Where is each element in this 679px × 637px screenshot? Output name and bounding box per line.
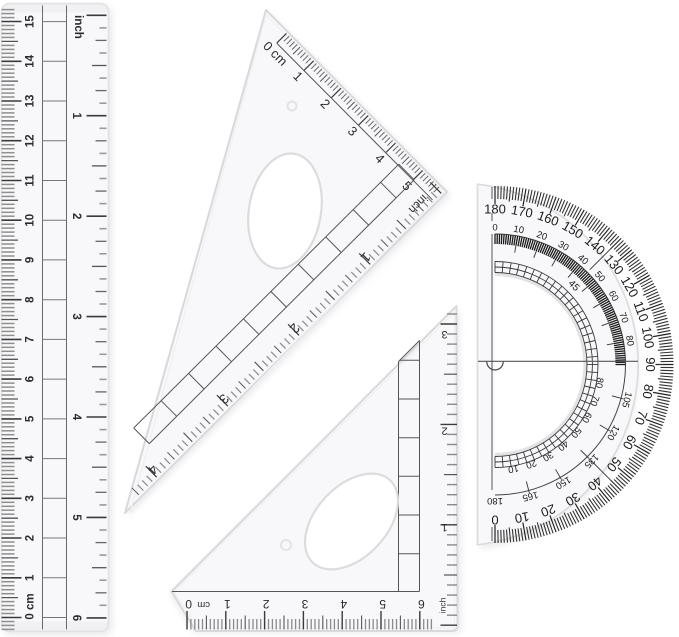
svg-text:11: 11 — [25, 174, 37, 187]
svg-text:0: 0 — [492, 223, 497, 234]
svg-text:6: 6 — [70, 615, 82, 621]
svg-text:180: 180 — [487, 495, 503, 506]
svg-text:5: 5 — [379, 597, 386, 611]
svg-text:3: 3 — [25, 495, 37, 501]
svg-text:cm: cm — [197, 599, 210, 610]
svg-text:6: 6 — [418, 597, 425, 611]
svg-text:5: 5 — [70, 514, 82, 521]
svg-text:inch: inch — [438, 597, 448, 613]
svg-text:6: 6 — [25, 376, 37, 382]
svg-text:0: 0 — [491, 513, 498, 528]
svg-text:180: 180 — [484, 202, 506, 217]
svg-text:7: 7 — [25, 336, 37, 342]
svg-text:12: 12 — [25, 134, 37, 147]
svg-text:10: 10 — [25, 214, 37, 227]
svg-text:80: 80 — [593, 377, 606, 389]
svg-text:0: 0 — [185, 597, 192, 611]
svg-text:5: 5 — [25, 415, 37, 422]
svg-text:10: 10 — [513, 224, 525, 237]
svg-text:2: 2 — [441, 425, 447, 437]
svg-text:1: 1 — [70, 112, 82, 119]
svg-text:1: 1 — [441, 521, 447, 533]
svg-text:13: 13 — [25, 95, 37, 108]
svg-text:8: 8 — [25, 296, 37, 303]
svg-text:90: 90 — [643, 357, 658, 371]
svg-text:80: 80 — [639, 383, 656, 400]
svg-text:14: 14 — [25, 54, 37, 67]
svg-text:4: 4 — [340, 597, 347, 611]
svg-text:1: 1 — [25, 574, 37, 581]
svg-text:3: 3 — [441, 328, 447, 340]
svg-text:3: 3 — [301, 597, 308, 611]
svg-text:inch: inch — [72, 15, 84, 39]
svg-text:0 cm: 0 cm — [25, 593, 37, 619]
svg-text:2: 2 — [70, 213, 82, 219]
svg-text:15: 15 — [25, 15, 37, 28]
svg-text:2: 2 — [25, 535, 37, 541]
svg-text:4: 4 — [70, 414, 82, 421]
svg-text:10: 10 — [514, 509, 531, 526]
svg-text:80: 80 — [623, 335, 636, 347]
svg-text:4: 4 — [25, 455, 37, 462]
svg-text:9: 9 — [25, 257, 37, 263]
svg-text:1: 1 — [224, 597, 231, 611]
svg-text:3: 3 — [70, 313, 82, 319]
svg-text:10: 10 — [507, 462, 519, 475]
svg-text:2: 2 — [263, 597, 270, 611]
